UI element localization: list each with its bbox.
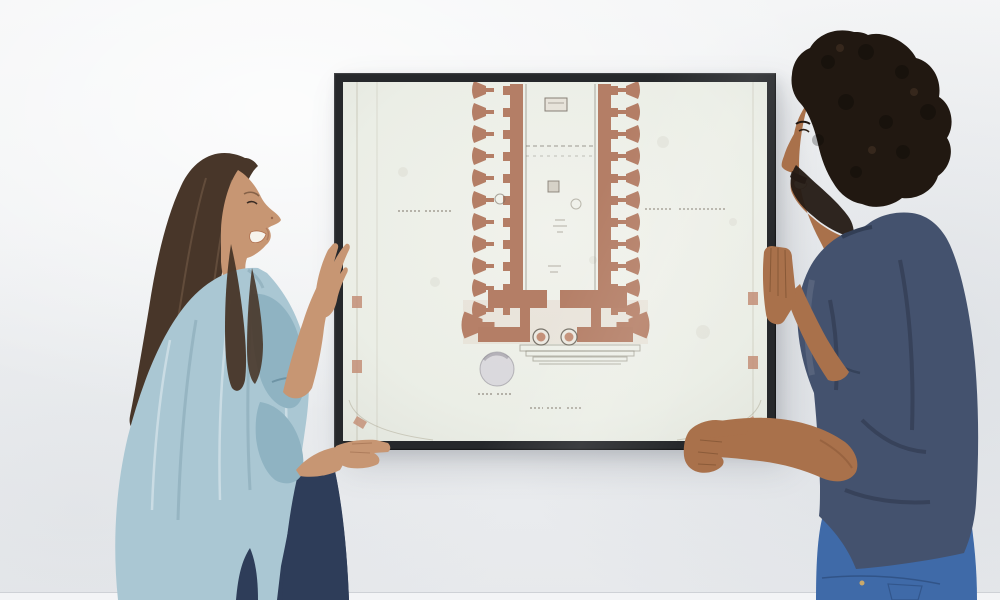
people-layer bbox=[0, 0, 1000, 600]
man bbox=[684, 30, 978, 600]
man-right-hand bbox=[763, 246, 796, 324]
woman-left-hand bbox=[315, 243, 350, 318]
woman-nostril bbox=[271, 217, 273, 219]
woman-right-hand bbox=[333, 440, 390, 469]
photo-scene: A smiling woman in a light-blue shirt an… bbox=[0, 0, 1000, 600]
man-tshirt bbox=[797, 212, 978, 569]
jeans-rivet bbox=[860, 581, 865, 586]
woman bbox=[115, 153, 390, 600]
